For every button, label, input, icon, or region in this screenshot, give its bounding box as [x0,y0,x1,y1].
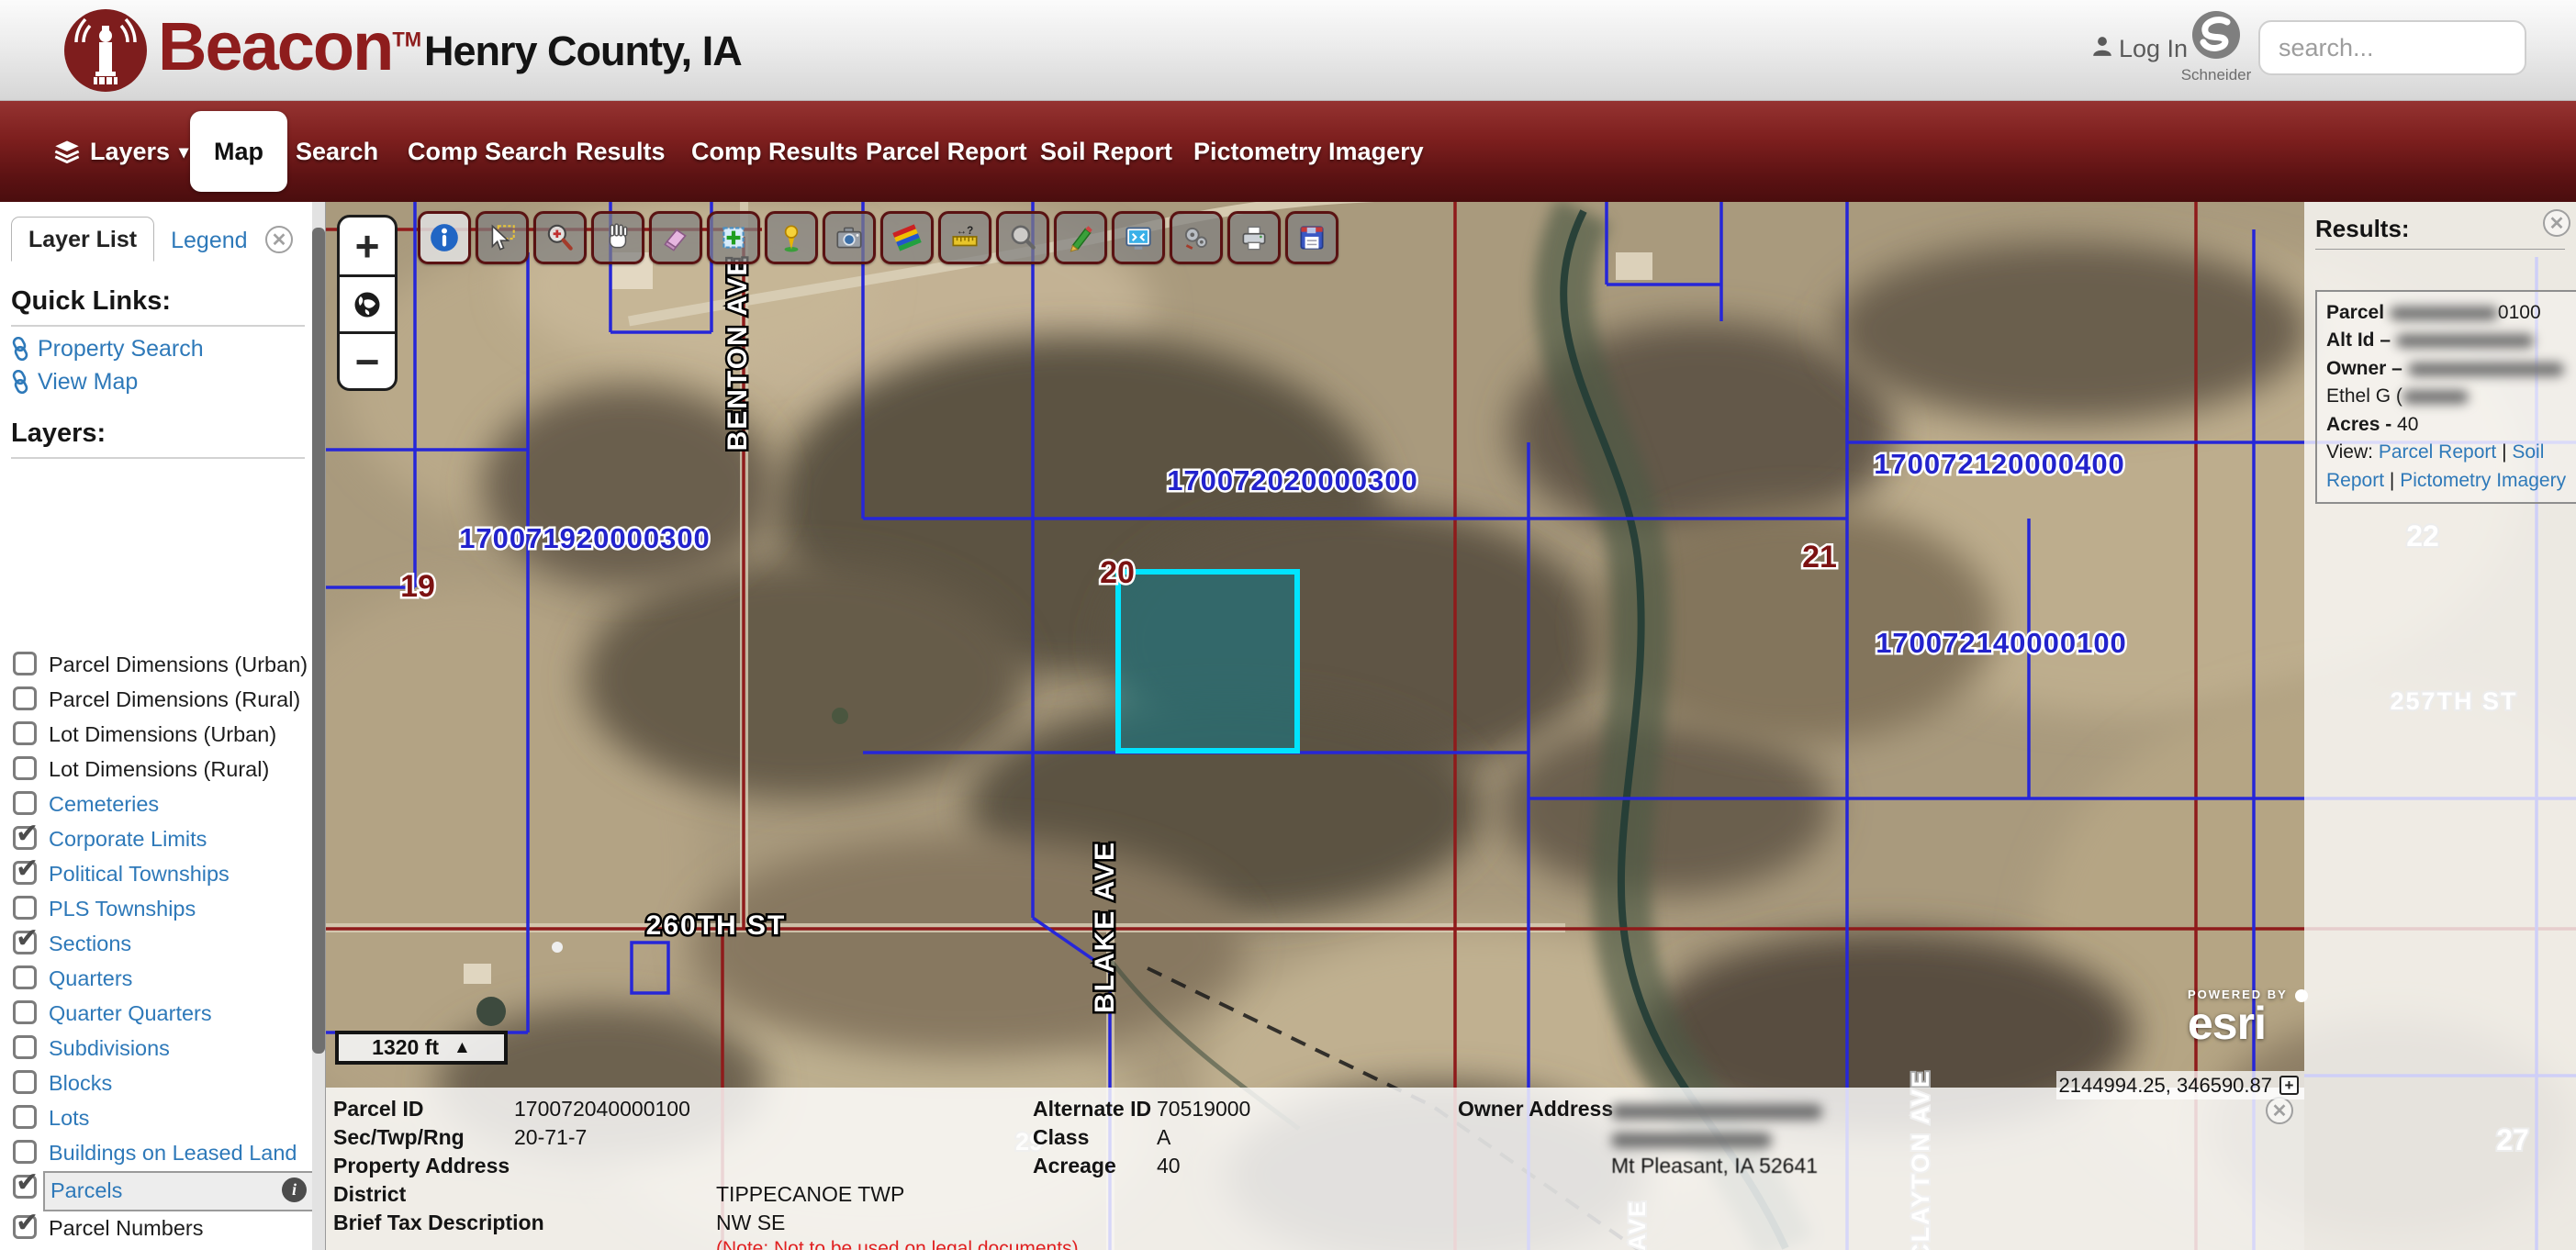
result-item[interactable]: Parcel 0100 Alt Id – Owner – Ethel G ( A… [2315,290,2576,504]
layer-label[interactable]: Cemeteries [49,787,159,820]
layer-row: ✔ Parcel Numbers i [11,1211,314,1246]
markup-tool-button[interactable] [1054,211,1107,264]
schneider-logo[interactable]: Schneider [2179,9,2253,84]
layer-label[interactable]: Lot Dimensions (Rural) [49,753,269,786]
svg-text:BENTON AVE: BENTON AVE [722,256,753,452]
layer-row: ✔ Blocks i [11,1066,314,1101]
result-owner-line2: Ethel G ( [2326,383,2576,410]
app-header: BeaconTM Henry County, IA Log In Schneid… [0,0,2576,101]
layer-label[interactable]: Corporate Limits [49,822,207,855]
layer-checkbox[interactable]: ✔ [13,1175,37,1199]
property-search-link[interactable]: Property Search [11,336,204,363]
nav-tab[interactable]: Map ▾ [190,111,287,192]
divider [11,325,305,327]
layer-label[interactable]: Quarter Quarters [49,997,212,1030]
close-info-panel-icon[interactable]: ✕ [2266,1097,2293,1124]
nav-tab[interactable]: Search ▾ [296,101,378,202]
layer-label[interactable]: Parcel Dimensions (Rural) [49,683,300,716]
svg-text:170071920000300: 170071920000300 [459,522,711,554]
layer-label[interactable]: Lot Dimensions (Urban) [49,718,276,751]
selected-parcel[interactable] [1118,572,1297,751]
coordinates-expand-icon[interactable]: + [2279,1076,2299,1095]
property-address-label: Property Address [333,1154,510,1178]
parcel-info-panel: ✕ Parcel ID 170072040000100 Sec/Twp/Rng … [326,1088,2304,1250]
layer-label-wrap: Subdivisions i [49,1032,314,1065]
check-icon: ✔ [16,922,39,954]
layer-label-wrap: Quarters i [49,962,314,995]
tab-divider [11,262,204,262]
esri-attribution: POWERED BY esri [2188,988,2308,1044]
close-results-icon[interactable]: ✕ [2543,209,2570,237]
print-tool-button[interactable] [1227,211,1281,264]
nav-tab[interactable]: Layers ▾ [53,101,188,202]
measure-tool-button[interactable]: ↔? [938,211,991,264]
schneider-label: Schneider [2179,66,2253,84]
nav-tab[interactable]: Comp Results ▾ [691,101,858,202]
zoom-in-tool-button[interactable] [533,211,587,264]
layer-label-wrap: Parcel Dimensions (Rural) i [49,683,314,716]
link-icon [11,337,29,362]
owner-address-label: Owner Address [1458,1097,1613,1122]
zoom-control: + − [337,215,398,391]
results-panel: ✕ Results: Parcel 0100 Alt Id – Owner – … [2304,202,2576,1250]
search-input[interactable] [2260,34,2576,62]
layer-label-wrap: Parcel Deedhold i [49,1246,314,1250]
layer-label[interactable]: Subdivisions [49,1032,170,1065]
layer-checkbox[interactable]: ✔ [13,1035,37,1059]
layer-label-wrap: Blocks i [49,1066,314,1099]
layer-checkbox[interactable]: ✔ [13,1140,37,1164]
coordinates-readout: 2144994.25, 346590.87 + [2056,1071,2304,1099]
layer-row: ✔ Parcels i [11,1171,314,1211]
parcel-report-link[interactable]: Parcel Report [2379,441,2496,463]
map-toolbar: ↔? [418,211,1338,264]
owner-address-redacted [1611,1127,1772,1152]
zoom-out-button[interactable]: − [340,331,395,388]
layer-row: ✔ Parcel Deedhold i [11,1246,314,1250]
layer-checkbox[interactable]: ✔ [13,965,37,989]
acreage-value: 40 [1157,1154,1181,1178]
layer-label[interactable]: Blocks [49,1066,112,1099]
alternate-id-value: 70519000 [1157,1097,1250,1122]
find-tool-button[interactable] [996,211,1049,264]
redacted-text [2408,363,2564,376]
layer-row: ✔ Cemeteries i [11,787,314,822]
sec-twp-rng-label: Sec/Twp/Rng [333,1125,465,1150]
nav-tab[interactable]: Results ▾ [576,101,666,202]
layer-checkbox[interactable]: ✔ [13,756,37,780]
layer-row: ✔ Subdivisions i [11,1032,314,1066]
zoom-in-button[interactable]: + [340,218,395,274]
layer-label-wrap: Sections i [49,927,314,960]
layer-label[interactable]: Parcel Dimensions (Urban) [49,648,308,681]
layer-label-wrap: Quarter Quarters i [49,997,314,1030]
layers-icon [53,140,81,163]
divider [11,457,305,459]
county-title: Henry County, IA [424,28,742,75]
scrollbar-thumb[interactable] [312,228,325,1054]
acreage-label: Acreage [1033,1154,1116,1178]
add-marker-tool-button[interactable] [765,211,818,264]
check-icon: ✔ [16,853,39,885]
layer-label-wrap: Buildings on Leased Land i [49,1136,314,1169]
layer-label[interactable]: Parcel Deedhold [49,1246,208,1250]
layer-checkbox[interactable]: ✔ [13,686,37,710]
beacon-logo-icon[interactable] [62,7,149,98]
identify-tool-button[interactable] [418,211,471,264]
select-tool-button[interactable] [476,211,529,264]
layer-row: ✔ Lot Dimensions (Rural) i [11,753,314,787]
svg-text:21: 21 [1802,540,1837,575]
result-owner-line: Owner – [2326,355,2576,383]
layer-checkbox[interactable]: ✔ [13,1105,37,1129]
export-map-tool-button[interactable] [1112,211,1165,264]
trademark: TM [392,28,421,50]
home-extent-button[interactable] [340,274,395,331]
layer-row: ✔ Quarter Quarters i [11,997,314,1032]
panel-tabs: Layer List Legend [11,217,264,262]
layer-checkbox[interactable]: ✔ [13,931,37,954]
user-icon [2091,35,2113,63]
layer-row: ✔ Quarters i [11,962,314,997]
layer-checkbox[interactable]: ✔ [13,721,37,745]
owner-city-value: Mt Pleasant, IA 52641 [1611,1154,1818,1178]
layer-label[interactable]: Buildings on Leased Land [49,1136,297,1169]
divider [2315,249,2565,250]
layer-label[interactable]: Parcels [50,1174,122,1207]
layer-row: ✔ Buildings on Leased Land i [11,1136,314,1171]
tax-description-value: NW SE [716,1211,785,1235]
globe-icon [352,289,383,320]
schneider-icon [2190,9,2242,61]
redacted-text [2396,334,2534,348]
district-label: District [333,1182,406,1207]
result-altid-line: Alt Id – [2326,327,2576,354]
select-shape-tool-button[interactable] [707,211,760,264]
nav-tab[interactable]: Pictometry Imagery ▾ [1193,101,1424,202]
parcel-id-label: Parcel ID [333,1097,423,1122]
svg-text:260TH ST: 260TH ST [646,910,787,941]
tax-description-label: Brief Tax Description [333,1211,544,1235]
layers-heading: Layers: [11,419,106,449]
layer-checkbox[interactable]: ✔ [13,896,37,920]
parcel-id-value: 170072040000100 [514,1097,690,1122]
brand-wordmark[interactable]: BeaconTM [158,7,421,85]
login-button[interactable]: Log In [2091,35,2188,63]
layer-label-wrap: PLS Townships i [49,892,314,925]
layer-checkbox[interactable]: ✔ [13,861,37,885]
svg-text:20: 20 [1100,555,1135,590]
beacon-app: BeaconTM Henry County, IA Log In Schneid… [0,0,2576,1250]
layer-checkbox[interactable]: ✔ [13,652,37,675]
result-view-links: View: Parcel Report | Soil Report | Pict… [2326,439,2576,495]
scale-expand-icon[interactable]: ▲ [454,1038,471,1058]
alternate-id-label: Alternate ID [1033,1097,1151,1122]
layer-row: ✔ Parcel Dimensions (Urban) i [11,648,314,683]
check-icon: ✔ [16,1166,39,1199]
layer-row: ✔ Lots i [11,1101,314,1136]
layer-label-wrap: Corporate Limits i [49,822,314,855]
result-parcel-line: Parcel 0100 [2326,299,2576,327]
owner-address-redacted [1611,1099,1822,1123]
svg-text:19: 19 [400,569,435,604]
layer-row: ✔ Corporate Limits i [11,822,314,857]
layer-label-wrap: Parcel Numbers i [49,1211,314,1244]
check-icon: ✔ [16,818,39,850]
layer-label[interactable]: Lots [49,1101,89,1134]
layer-label-wrap: Political Townships i [49,857,314,890]
layer-checkbox[interactable]: ✔ [13,826,37,850]
layer-checkbox[interactable]: ✔ [13,1070,37,1094]
layer-row: ✔ Lot Dimensions (Urban) i [11,718,314,753]
layer-label-wrap: Cemeteries i [49,787,314,820]
photo-tool-button[interactable] [823,211,876,264]
sidebar-scrollbar[interactable] [312,202,325,1250]
close-panel-icon[interactable]: ✕ [265,226,293,253]
layer-label-wrap: Parcel Dimensions (Urban) i [49,648,314,681]
layer-panel: Layer List Legend ✕ Quick Links: Propert… [0,202,326,1250]
tab-legend[interactable]: Legend [154,218,263,262]
pan-tool-button[interactable] [591,211,644,264]
nav-tab[interactable]: Parcel Report ▾ [866,101,1027,202]
legal-note: (Note: Not to be used on legal documents… [716,1238,1079,1250]
search-box [2258,20,2526,75]
caret-down-icon: ▾ [179,140,188,163]
scale-value: 1320 ft [372,1035,439,1060]
layer-row: ✔ Parcel Dimensions (Rural) i [11,683,314,718]
result-acres-line: Acres - 40 [2326,411,2576,439]
redacted-text [2402,390,2469,404]
sec-twp-rng-value: 20-71-7 [514,1125,587,1150]
layer-label-wrap: Lots i [49,1101,314,1134]
layer-label-wrap: Lot Dimensions (Urban) i [49,718,314,751]
layer-label[interactable]: Parcel Numbers [49,1211,203,1244]
layer-label-wrap: Parcels i [43,1171,314,1211]
redacted-text [2390,307,2498,320]
nav-tab[interactable]: Soil Report ▾ [1040,101,1172,202]
svg-text:170072140000100: 170072140000100 [1876,627,2127,659]
svg-text:170072120000400: 170072120000400 [1874,448,2125,480]
svg-text:BLAKE AVE: BLAKE AVE [1090,841,1120,1013]
pictometry-imagery-link[interactable]: Pictometry Imagery [2400,470,2566,491]
nav-tab[interactable]: Comp Search ▾ [408,101,567,202]
svg-text:170072020000300: 170072020000300 [1167,464,1418,497]
view-map-link[interactable]: View Map [11,369,138,396]
save-tool-button[interactable] [1285,211,1338,264]
layer-checkbox[interactable]: ✔ [13,1000,37,1024]
layer-label[interactable]: Quarters [49,962,132,995]
layer-row: ✔ Sections i [11,927,314,962]
scale-bar: 1320 ft ▲ [335,1031,508,1065]
layer-row: ✔ PLS Townships i [11,892,314,927]
link-icon [11,370,29,395]
layer-checkbox[interactable]: ✔ [13,791,37,815]
layer-label[interactable]: PLS Townships [49,892,196,925]
quick-links-heading: Quick Links: [11,286,171,317]
svg-text:↔?: ↔? [956,225,973,237]
tab-layer-list[interactable]: Layer List [11,217,154,262]
check-icon: ✔ [16,1207,39,1239]
results-heading: Results: [2315,215,2576,243]
class-label: Class [1033,1125,1089,1150]
class-value: A [1157,1125,1170,1150]
layer-row: ✔ Political Townships i [11,857,314,892]
tools-tool-button[interactable] [1170,211,1223,264]
info-icon[interactable]: i [282,1177,307,1202]
layer-checkbox[interactable]: ✔ [13,1215,37,1239]
layer-label-wrap: Lot Dimensions (Rural) i [49,753,314,786]
pictometry-tool-button[interactable] [880,211,934,264]
district-value: TIPPECANOE TWP [716,1182,904,1207]
layer-label[interactable]: Political Townships [49,857,230,890]
layer-label[interactable]: Sections [49,927,131,960]
erase-tool-button[interactable] [649,211,702,264]
main-nav: Layers ▾ Map ▾ Search ▾ [0,101,2576,202]
